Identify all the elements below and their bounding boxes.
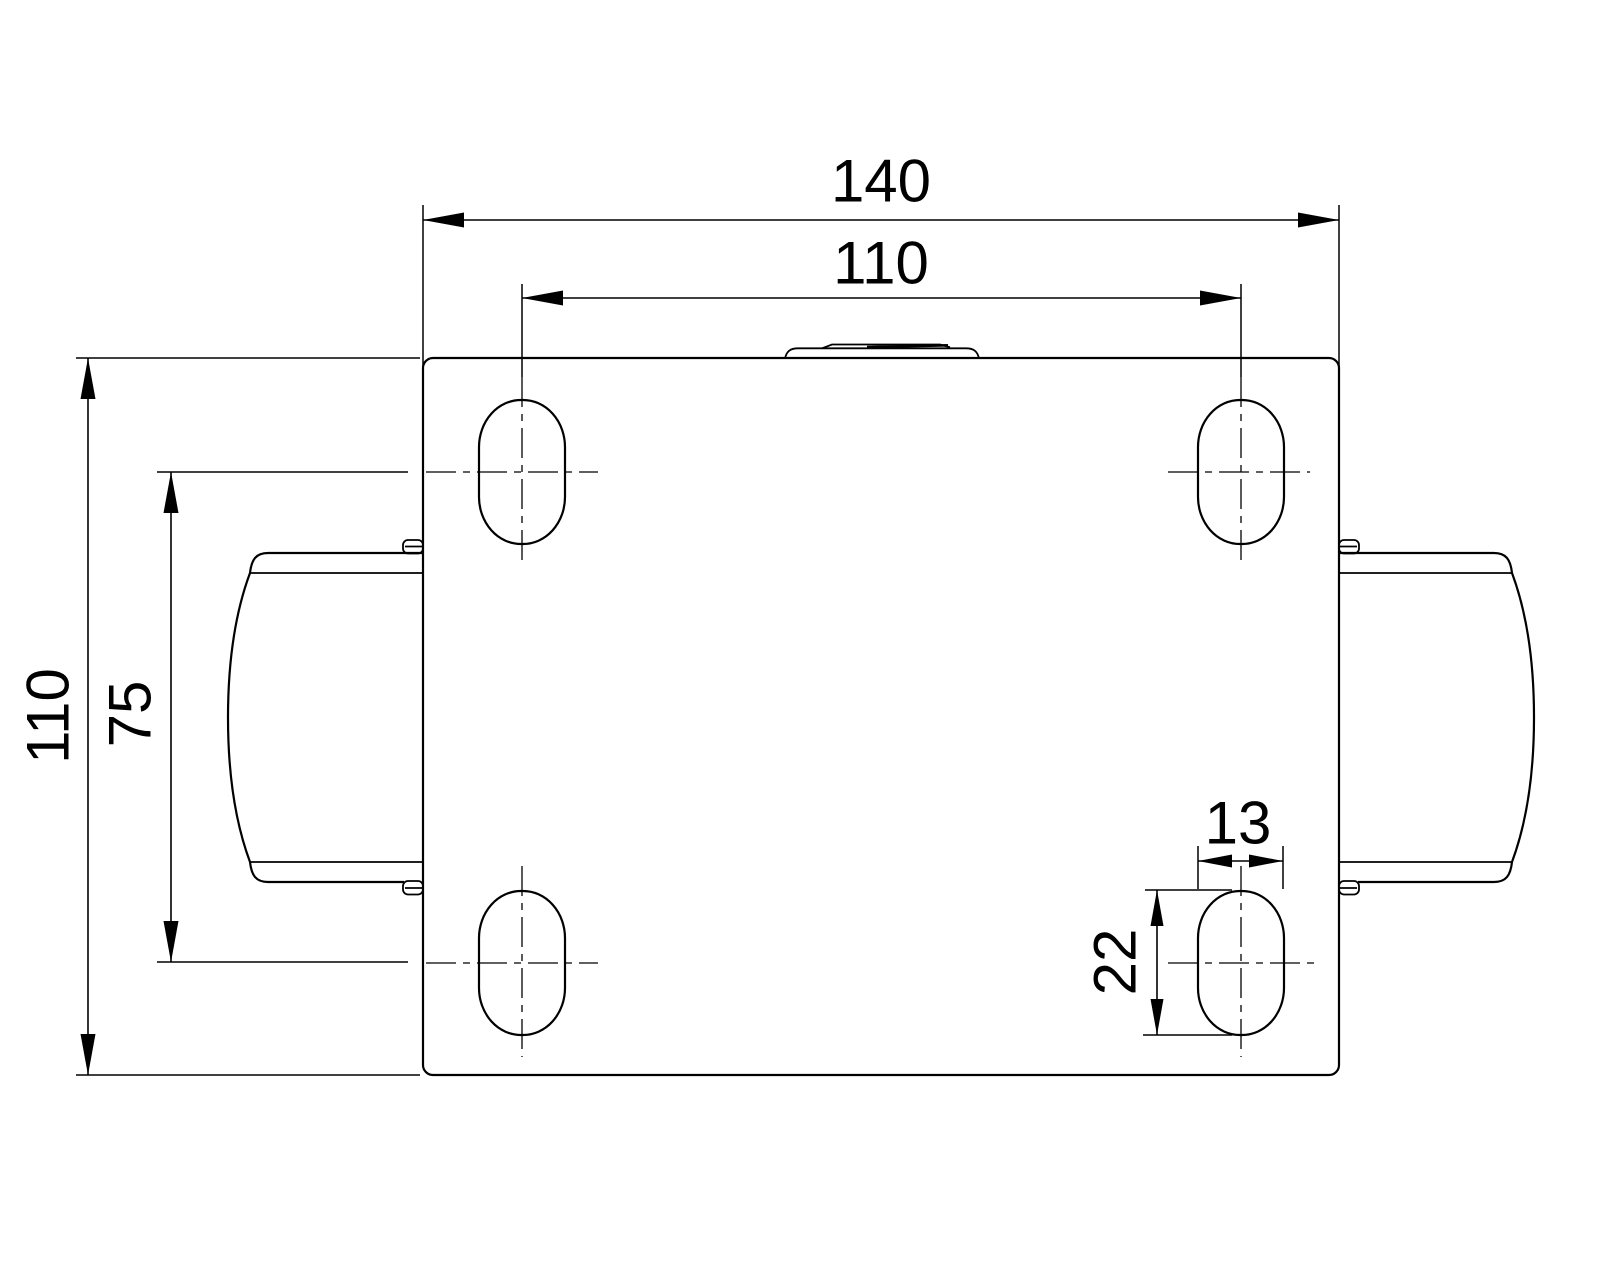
dim-label-bolt-pattern-depth: 75 [97, 681, 164, 748]
wheel-left-outline [228, 553, 423, 882]
arrow-75-bottom [164, 921, 179, 962]
dim-label-slot-width: 13 [1205, 790, 1272, 857]
wheel-left-end [228, 553, 423, 882]
arrow-110top-left [522, 291, 563, 306]
dim-label-plate-depth: 110 [15, 668, 82, 764]
dim-label-slot-length: 22 [1082, 929, 1149, 996]
technical-drawing-canvas: 140 110 110 75 13 22 [0, 0, 1600, 1280]
top-boss-lip-edge [867, 345, 948, 347]
arrow-110left-bottom [81, 1034, 96, 1075]
wheel-right-outline [1339, 553, 1534, 882]
mounting-plate-outline [423, 358, 1339, 1075]
dim-label-bolt-pattern-width: 110 [833, 230, 929, 297]
dim-label-plate-width: 140 [831, 148, 931, 215]
top-boss [785, 345, 979, 359]
arrow-110top-right [1200, 291, 1241, 306]
arrow-140-left [423, 213, 464, 228]
caster-plate-top-view-drawing: 140 110 110 75 13 22 [0, 0, 1600, 1280]
arrow-110left-top [81, 358, 96, 399]
wheel-right-end [1339, 553, 1534, 882]
arrow-75-top [164, 472, 179, 513]
arrow-140-right [1298, 213, 1339, 228]
